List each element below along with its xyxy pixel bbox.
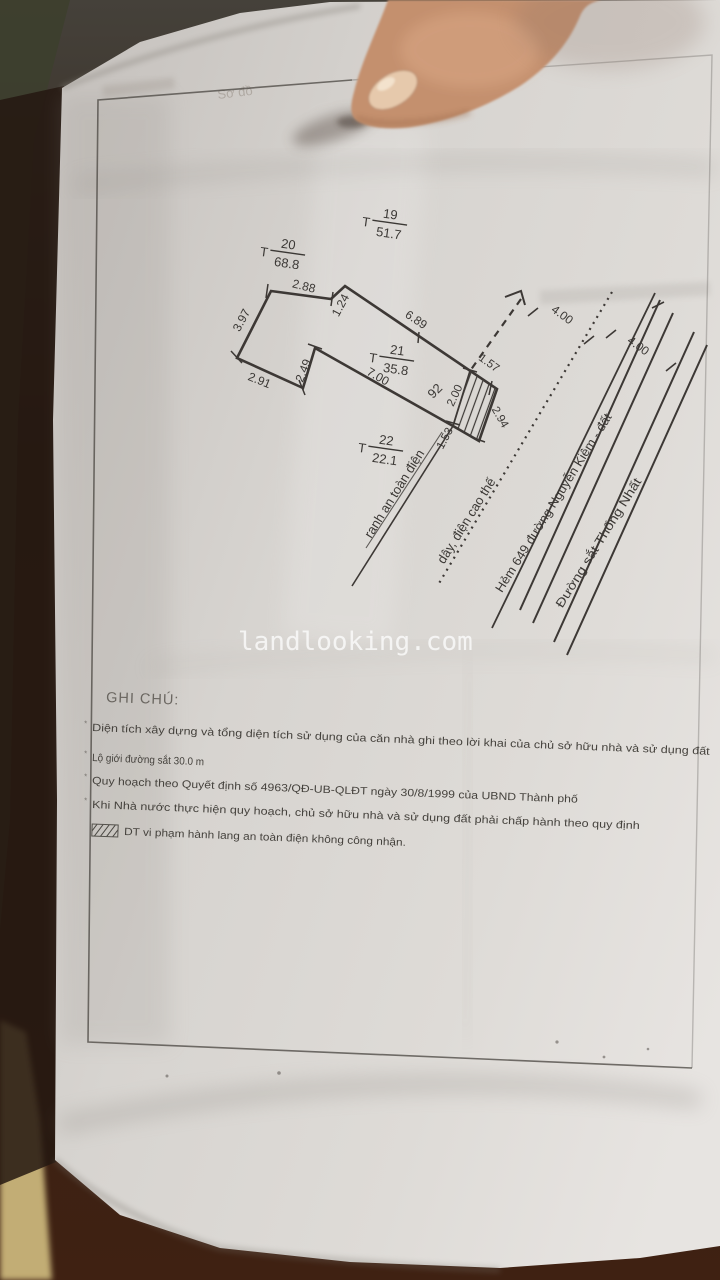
note-bullet: * xyxy=(84,796,87,805)
photo-of-land-survey-document: Sơ đồ 2.8 xyxy=(0,0,720,1280)
watermark-text: landlooking.com xyxy=(238,627,473,657)
marker-num: 20 xyxy=(280,236,296,253)
note-bullet: * xyxy=(84,749,87,758)
marker-num: 19 xyxy=(382,206,398,223)
legend-hatch-symbol xyxy=(92,824,118,837)
marker-num: 22 xyxy=(378,432,394,449)
notes-heading: GHI CHÚ: xyxy=(106,689,180,709)
scene: Sơ đồ 2.8 xyxy=(0,0,720,1280)
note-bullet: * xyxy=(84,719,87,728)
left-gap-shadow xyxy=(0,86,64,1185)
marker-num: 21 xyxy=(389,342,405,359)
note-bullet: * xyxy=(84,772,87,781)
